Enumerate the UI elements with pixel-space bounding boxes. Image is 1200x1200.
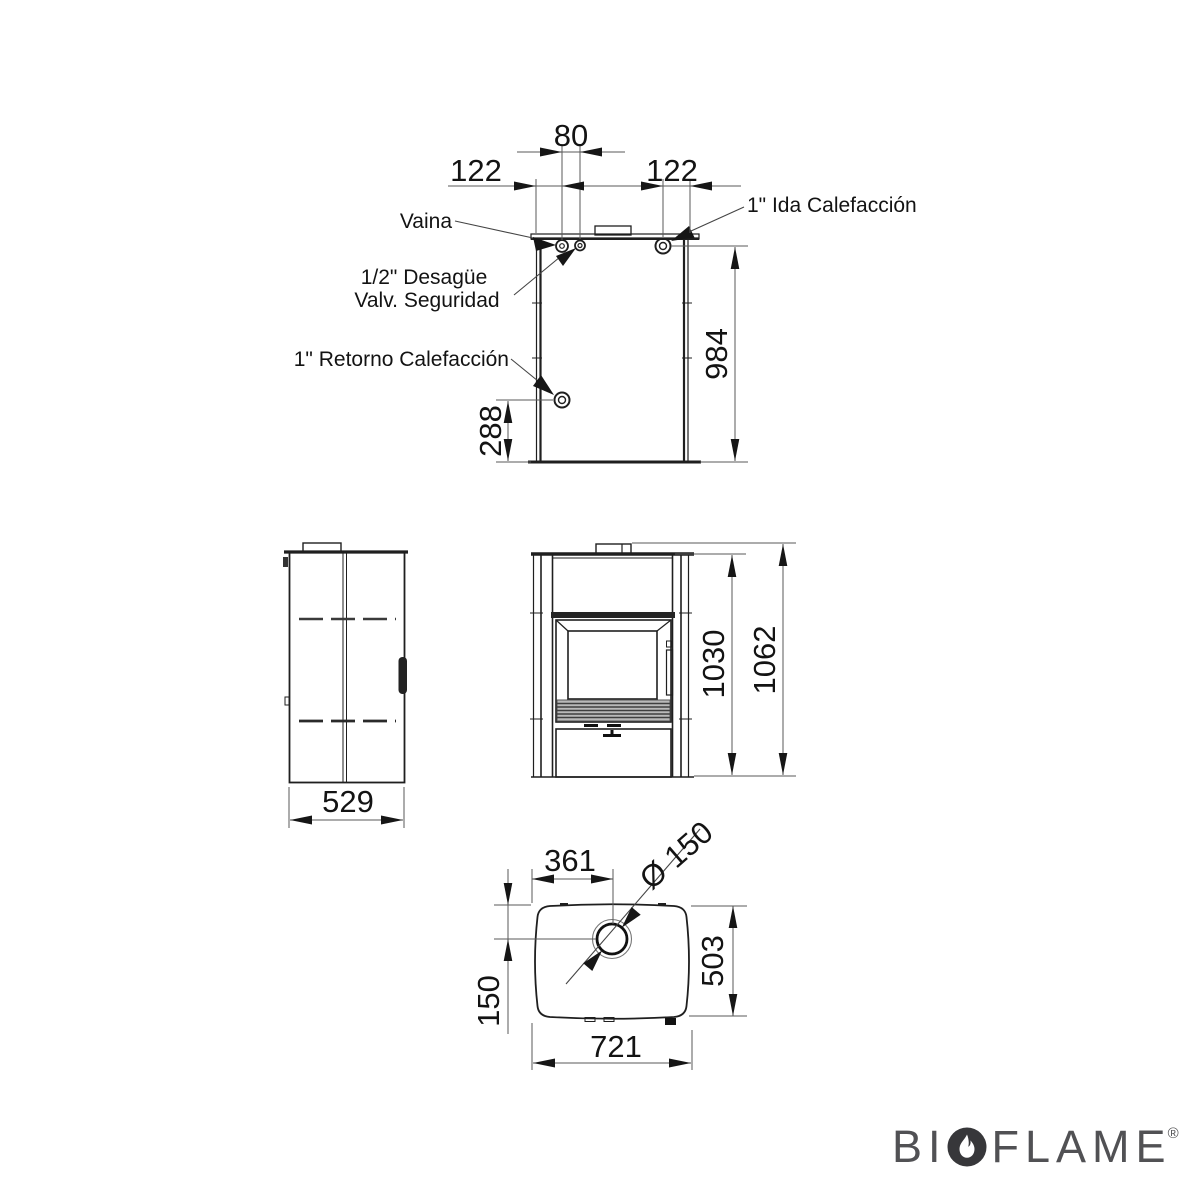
door-handle-side xyxy=(399,657,408,694)
logo-flame-icon xyxy=(947,1127,987,1167)
callout-drain-line2: Valv. Seguridad xyxy=(354,289,499,312)
front-side-panels xyxy=(530,555,692,777)
louver-vent xyxy=(557,700,670,721)
dim-label-80: 80 xyxy=(554,118,588,153)
vent-slot-right xyxy=(607,724,621,727)
plan-body-outline xyxy=(535,904,689,1019)
window-top-band xyxy=(551,612,675,618)
callout-flow: 1" Ida Calefacción xyxy=(747,194,917,217)
dim-label-122-right: 122 xyxy=(646,153,698,188)
rear-view: 80 122 122 984 288 Vaina 1/2" Desagüe Va… xyxy=(294,118,917,462)
dim-label-361: 361 xyxy=(544,843,596,878)
vaina-port xyxy=(556,240,568,252)
dim-label-122-left: 122 xyxy=(450,153,502,188)
dim-label-flue-diameter: Ø 150 xyxy=(633,814,720,896)
logo-text-bi: BI xyxy=(892,1124,947,1169)
dim-label-529: 529 xyxy=(322,784,374,819)
vent-slot-left xyxy=(584,724,598,727)
plan-view: 361 Ø 150 150 503 721 xyxy=(471,814,747,1070)
dim-label-1030: 1030 xyxy=(696,630,731,699)
heating-flow-port xyxy=(656,239,671,254)
callout-drain-line1: 1/2" Desagüe xyxy=(361,266,488,289)
logo-registered-mark: ® xyxy=(1168,1126,1179,1141)
dim-label-150: 150 xyxy=(471,975,506,1027)
bioflame-logo: BI FLAME ® xyxy=(892,1124,1179,1169)
dim-label-503: 503 xyxy=(695,935,730,987)
flue-outlet xyxy=(593,920,632,959)
dim-label-984: 984 xyxy=(699,328,734,380)
heating-return-port xyxy=(555,393,570,408)
side-tab-lower xyxy=(285,697,289,705)
front-view: 1030 1062 xyxy=(530,543,796,777)
dim-label-1062: 1062 xyxy=(747,626,782,695)
stove-technical-drawing: 80 122 122 984 288 Vaina 1/2" Desagüe Va… xyxy=(0,0,1200,1200)
drawer-latch xyxy=(603,734,621,737)
callout-vaina: Vaina xyxy=(400,210,452,233)
dim-label-721: 721 xyxy=(590,1029,642,1064)
technical-drawing-page: 80 122 122 984 288 Vaina 1/2" Desagüe Va… xyxy=(0,0,1200,1200)
side-view: 529 xyxy=(283,543,408,828)
side-hinge-tab xyxy=(283,557,288,567)
plan-foot-right xyxy=(665,1018,676,1025)
rear-body-outline xyxy=(528,239,701,462)
logo-text-flame: FLAME xyxy=(992,1124,1172,1169)
callout-return: 1" Retorno Calefacción xyxy=(294,348,509,371)
safety-valve-drain-port xyxy=(575,241,585,251)
dim-label-288: 288 xyxy=(473,405,508,457)
